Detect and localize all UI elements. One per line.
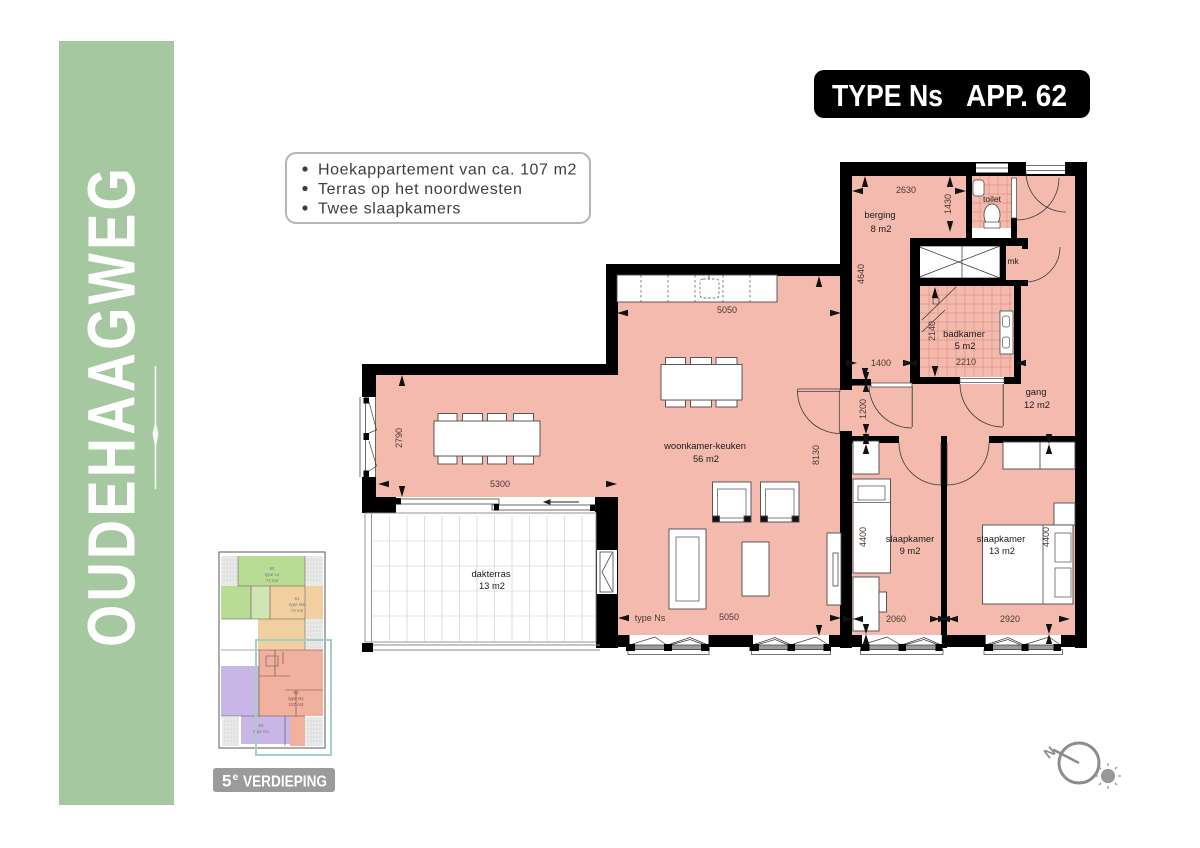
svg-text:2060: 2060 <box>886 614 906 624</box>
svg-text:berging: berging <box>864 209 895 220</box>
svg-text:type Ns: type Ns <box>288 696 304 701</box>
svg-text:5050: 5050 <box>719 612 739 622</box>
svg-text:e: e <box>233 771 239 783</box>
svg-text:1430: 1430 <box>943 194 953 214</box>
svg-text:Twee slaapkamers: Twee slaapkamers <box>318 201 461 218</box>
svg-text:badkamer: badkamer <box>943 328 985 339</box>
svg-text:2630: 2630 <box>896 185 916 195</box>
svg-text:TYPE Ns: TYPE Ns <box>832 78 943 113</box>
svg-text:VERDIEPING: VERDIEPING <box>243 774 327 791</box>
svg-text:2920: 2920 <box>1000 614 1020 624</box>
svg-text:5: 5 <box>222 772 231 791</box>
svg-text:woonkamer-keuken: woonkamer-keuken <box>663 440 746 451</box>
svg-text:1200: 1200 <box>858 399 868 419</box>
svg-text:5300: 5300 <box>490 479 510 489</box>
svg-text:1400: 1400 <box>871 358 891 368</box>
svg-text:type Ns: type Ns <box>635 613 666 623</box>
svg-text:56 m2: 56 m2 <box>693 453 719 464</box>
svg-text:61: 61 <box>294 596 300 601</box>
svg-text:mk: mk <box>1007 256 1019 266</box>
svg-text:toilet: toilet <box>983 194 1002 204</box>
svg-text:107 m2: 107 m2 <box>288 702 304 707</box>
svg-text:5 m2: 5 m2 <box>955 340 976 351</box>
svg-text:Hoekappartement van ca. 107 m2: Hoekappartement van ca. 107 m2 <box>318 162 577 179</box>
svg-text:4640: 4640 <box>856 264 866 284</box>
svg-text:N: N <box>1040 743 1058 762</box>
svg-text:slaapkamer: slaapkamer <box>886 533 934 544</box>
svg-text:2790: 2790 <box>394 428 404 448</box>
svg-text:63: 63 <box>258 723 264 728</box>
svg-text:13 m2: 13 m2 <box>479 580 505 591</box>
svg-text:60: 60 <box>269 566 275 571</box>
svg-text:9 m2: 9 m2 <box>900 545 921 556</box>
svg-text:2140: 2140 <box>927 321 937 341</box>
svg-text:74 m2: 74 m2 <box>266 578 279 583</box>
svg-text:13 m2: 13 m2 <box>989 545 1015 556</box>
svg-text:2210: 2210 <box>956 357 976 367</box>
svg-text:APP. 62: APP. 62 <box>966 78 1067 113</box>
svg-text:8130: 8130 <box>811 445 821 465</box>
svg-text:4400: 4400 <box>858 527 868 547</box>
svg-text:slaapkamer: slaapkamer <box>977 533 1025 544</box>
svg-text:62: 62 <box>293 690 299 695</box>
svg-text:12 m2: 12 m2 <box>1024 399 1050 410</box>
svg-text:dakterras: dakterras <box>471 568 510 579</box>
svg-text:Terras op het noordwesten: Terras op het noordwesten <box>318 181 522 198</box>
svg-text:gang: gang <box>1026 386 1047 397</box>
svg-text:74 m2: 74 m2 <box>291 608 304 613</box>
svg-text:OUDEHAAGWEG: OUDEHAAGWEG <box>75 165 150 647</box>
svg-text:8 m2: 8 m2 <box>871 223 892 234</box>
svg-text:5050: 5050 <box>717 305 737 315</box>
svg-text:type Ms: type Ms <box>289 602 306 607</box>
svg-text:4400: 4400 <box>1041 527 1051 547</box>
svg-text:type Ls: type Ls <box>265 572 280 577</box>
